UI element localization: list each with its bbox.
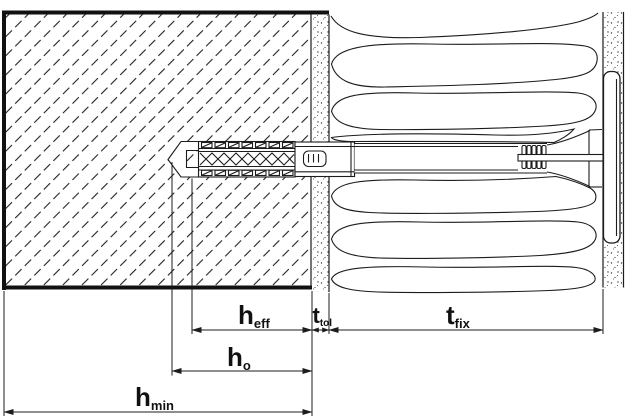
- anchor-plate: [604, 72, 621, 244]
- funnel-rim: [589, 130, 602, 131]
- insulation-strand: [332, 92, 597, 130]
- label-h-min: hmin: [135, 382, 174, 413]
- insulation-strand: [332, 221, 597, 258]
- insulation-strand: [332, 266, 596, 292]
- insulation-anchor-section-drawing: heff ttol tfix ho hmin: [0, 0, 635, 418]
- insulation-strand: [332, 177, 596, 214]
- expansion-sleeve: [199, 142, 296, 178]
- label-t-fix: tfix: [446, 300, 471, 331]
- technical-diagram-canvas: heff ttol tfix ho hmin: [0, 0, 635, 418]
- insulation-strand: [332, 44, 598, 87]
- anchor-pin: [518, 155, 603, 162]
- label-h-o: ho: [227, 342, 251, 373]
- insulation-strand: [331, 13, 598, 38]
- label-h-eff: heff: [238, 300, 270, 331]
- insulation-strand: [332, 129, 575, 143]
